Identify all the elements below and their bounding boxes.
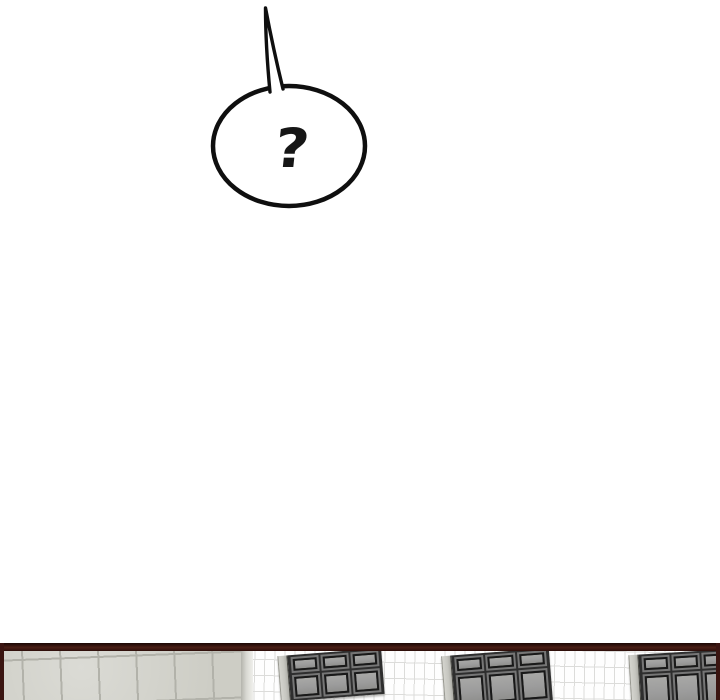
window-pane [294,675,319,697]
window [277,648,384,700]
window-frame [287,648,384,700]
speech-bubble-tail [266,8,284,92]
comic-page: ? [0,0,720,700]
window-pane [519,652,545,666]
window-pane [458,675,485,700]
window-pane [673,655,698,668]
window-frame [638,649,720,700]
window-pane [352,652,377,666]
panel-border-top [0,643,720,651]
window-frame [451,648,553,700]
window-pane [488,655,514,669]
question-mark-text: ? [271,118,312,181]
panel-border-left [0,643,4,700]
window-pane [456,657,482,671]
window-pane [293,657,318,671]
window-pane [489,673,516,700]
window [628,649,720,700]
window-pane [324,673,349,695]
wall-corner-edge [241,648,253,700]
speech-bubble: ? [0,0,720,240]
window-pane [323,655,348,669]
concrete-block-wall [0,648,247,700]
window-pane [354,670,379,692]
window-pane [644,657,669,670]
window [441,648,553,700]
panel-border-right [716,643,720,700]
building-panel [0,643,720,700]
concrete-texture [0,648,247,700]
window-pane [645,675,671,700]
window-pane [520,670,547,700]
window-pane [675,673,701,700]
